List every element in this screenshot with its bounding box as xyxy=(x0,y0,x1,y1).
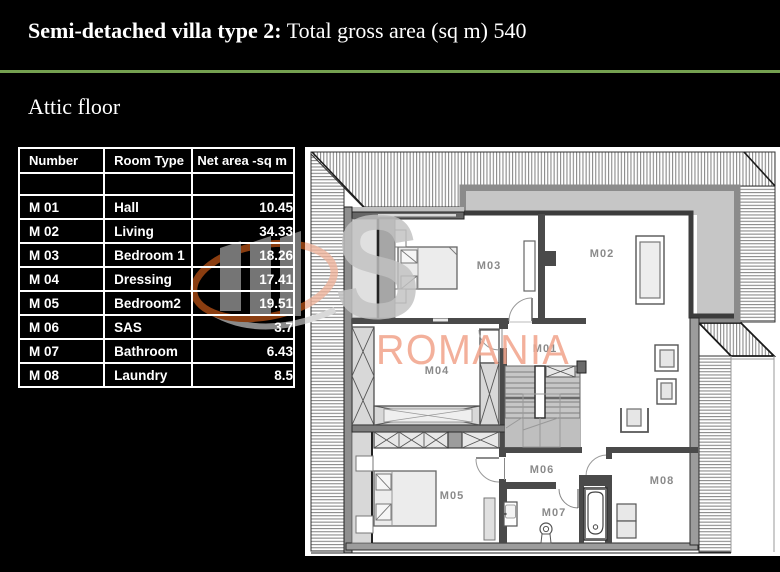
svg-text:M05: M05 xyxy=(440,490,464,502)
svg-text:M02: M02 xyxy=(590,248,614,260)
svg-text:M06: M06 xyxy=(530,464,554,476)
svg-text:M03: M03 xyxy=(477,260,501,272)
svg-text:M08: M08 xyxy=(650,475,674,487)
svg-text:ROMANIA: ROMANIA xyxy=(376,326,570,373)
svg-text:M07: M07 xyxy=(542,507,566,519)
